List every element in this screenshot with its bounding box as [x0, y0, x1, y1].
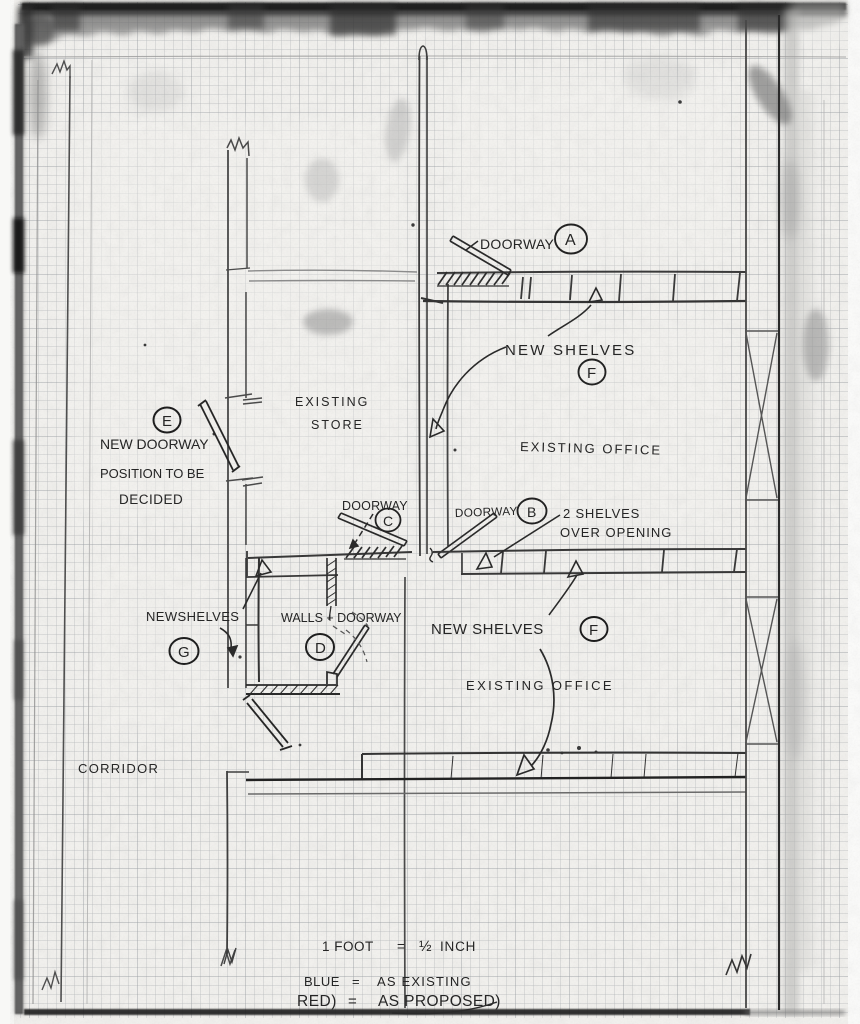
svg-text:=: = — [352, 974, 360, 989]
svg-text:½: ½ — [419, 938, 432, 955]
svg-text:DECIDED: DECIDED — [119, 492, 183, 507]
svg-text:G: G — [178, 644, 190, 661]
svg-text:INCH: INCH — [440, 939, 476, 954]
svg-text:AS PROPOSED): AS PROPOSED) — [378, 993, 501, 1010]
svg-text:EXISTING OFFICE: EXISTING OFFICE — [466, 678, 614, 693]
svg-text:POSITION TO BE: POSITION TO BE — [100, 466, 205, 481]
svg-text:E: E — [162, 413, 172, 430]
svg-text:1 FOOT: 1 FOOT — [322, 939, 374, 954]
svg-text:DOORWAY: DOORWAY — [455, 504, 518, 520]
svg-text:NEWSHELVES: NEWSHELVES — [146, 609, 239, 624]
svg-text:2 SHELVES: 2 SHELVES — [563, 506, 640, 521]
svg-text:STORE: STORE — [311, 418, 364, 432]
svg-text:B: B — [527, 504, 536, 520]
svg-text:DOORWAY: DOORWAY — [480, 236, 555, 252]
svg-text:WALLS + DOORWAY: WALLS + DOORWAY — [281, 611, 402, 625]
svg-text:NEW SHELVES: NEW SHELVES — [431, 621, 544, 638]
svg-text:EXISTING: EXISTING — [295, 395, 369, 409]
svg-text:D: D — [315, 640, 326, 657]
svg-text:F: F — [589, 622, 598, 639]
svg-text:C: C — [383, 513, 393, 529]
svg-text:CORRIDOR: CORRIDOR — [78, 761, 159, 776]
svg-text:OVER OPENING: OVER OPENING — [560, 525, 672, 540]
svg-text:RED): RED) — [297, 993, 337, 1010]
svg-text:NEW DOORWAY: NEW DOORWAY — [100, 436, 209, 452]
svg-text:AS EXISTING: AS EXISTING — [377, 974, 472, 989]
svg-text:NEW SHELVES: NEW SHELVES — [505, 342, 636, 359]
svg-text:BLUE: BLUE — [304, 974, 340, 989]
svg-text:A: A — [565, 232, 576, 249]
svg-text:DOORWAY: DOORWAY — [342, 499, 408, 513]
svg-text:=: = — [397, 939, 405, 954]
svg-text:=: = — [348, 993, 357, 1010]
svg-text:F: F — [587, 365, 596, 382]
